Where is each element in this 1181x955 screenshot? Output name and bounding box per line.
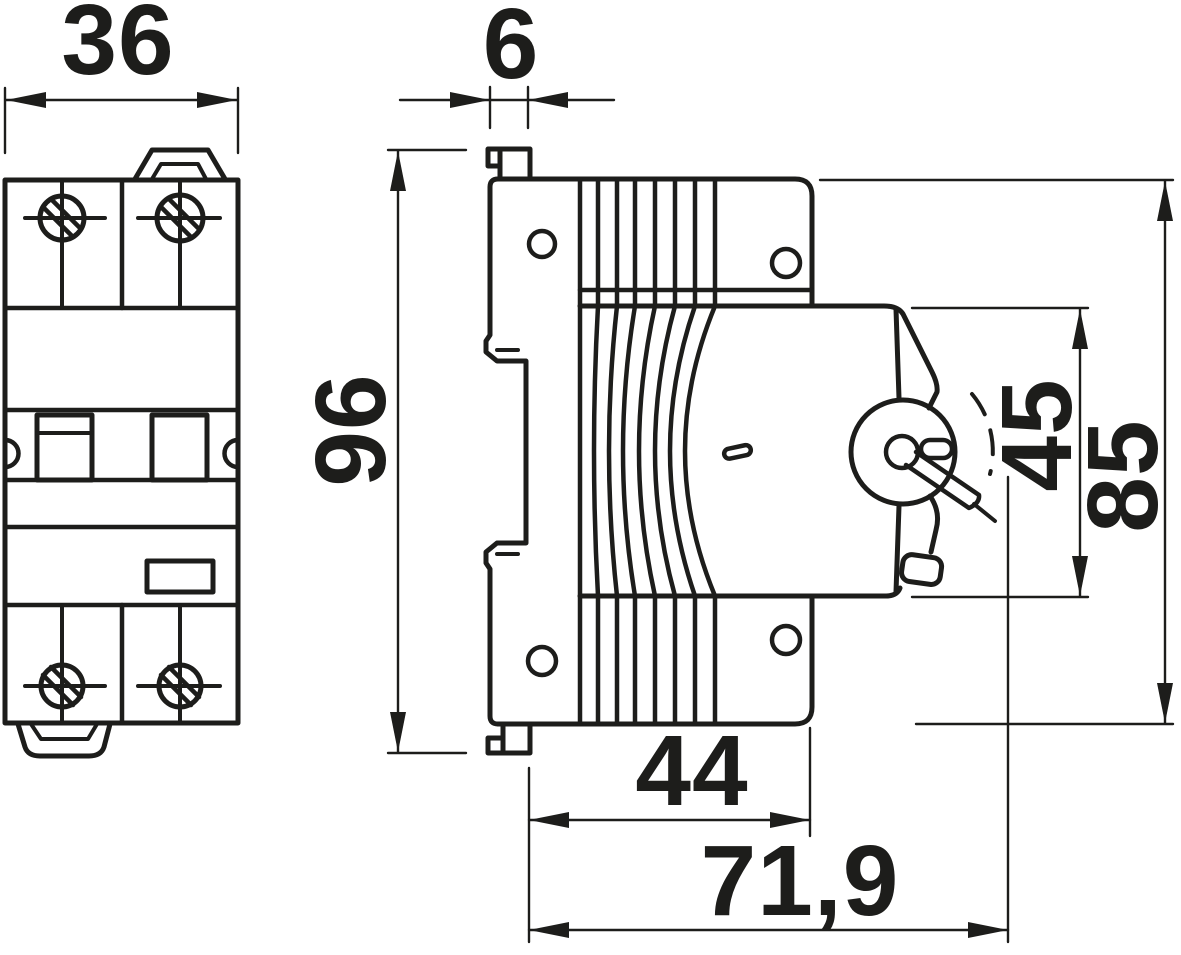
handle-slot [921, 440, 952, 458]
terminal-screw [25, 605, 105, 723]
escutcheon-bottom-edge [580, 588, 900, 596]
dim-label-clip-depth: 6 [483, 0, 540, 94]
label-window [147, 561, 213, 592]
toggle-switch-right [152, 415, 207, 480]
terminal-screw [25, 180, 105, 308]
clip-tab-bottom [488, 724, 530, 753]
din-clip-hook-detail [497, 350, 518, 554]
escutcheon-blade-lower [896, 506, 899, 592]
dim-front-width [5, 88, 238, 153]
cooling-fin-curves [594, 306, 715, 596]
din-rail-clip-profile [486, 179, 526, 724]
escutcheon-blade-upper [896, 309, 899, 398]
terminal-screw [138, 180, 220, 308]
front-bottom-tab-inner [31, 724, 97, 739]
front-top-tab-inner [152, 164, 206, 179]
front-view [5, 150, 238, 756]
escutcheon-foot [900, 553, 942, 585]
dim-label-total-depth: 71,9 [701, 831, 900, 931]
mounting-hole [772, 249, 800, 277]
rotary-handle-hub [886, 436, 918, 468]
mounting-hole [529, 231, 555, 257]
mounting-hole [772, 626, 800, 654]
mounting-hole [528, 647, 556, 675]
dim-label-front-width: 36 [61, 0, 174, 90]
cooling-fins [580, 179, 715, 724]
handle-lever-tip [974, 504, 995, 521]
dim-label-mounting-height: 85 [1073, 419, 1173, 532]
toggle-switch-left [37, 415, 92, 480]
status-indicator-mark [723, 444, 751, 459]
side-view [486, 149, 995, 753]
terminal-screw [138, 605, 220, 723]
clip-tab-top [488, 149, 530, 179]
dim-label-body-depth: 44 [635, 721, 748, 821]
dimension-drawing: 36 6 96 44 71,9 45 85 [0, 0, 1181, 955]
escutcheon-blade-lower-edge [930, 496, 938, 552]
dim-label-total-height: 96 [301, 373, 401, 486]
